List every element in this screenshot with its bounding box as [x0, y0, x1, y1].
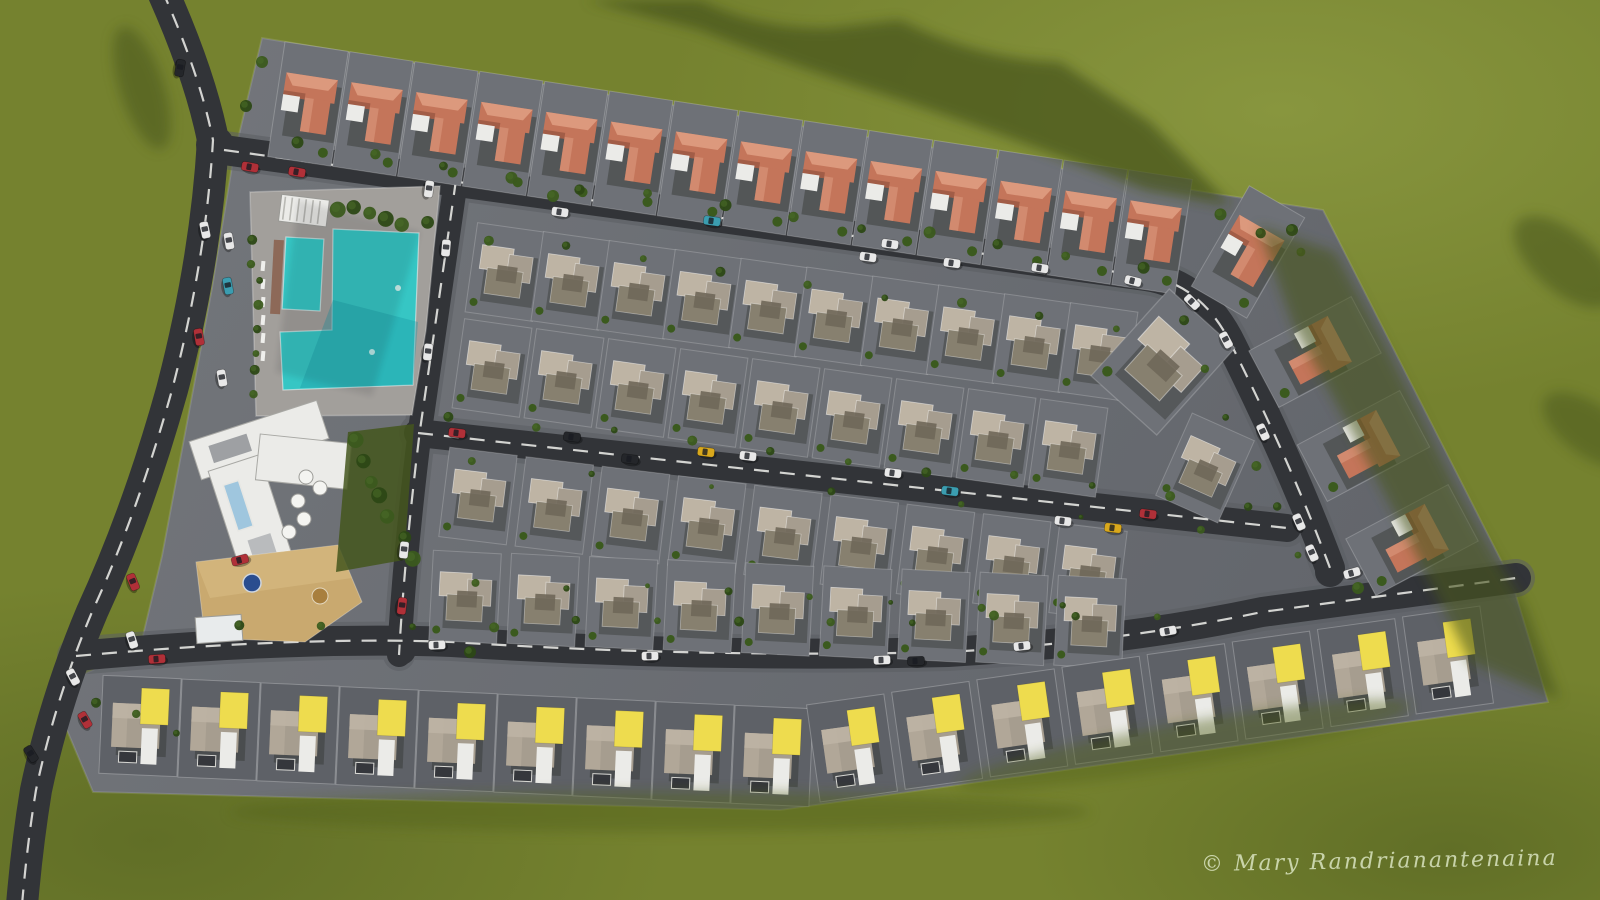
- yellow-roof-house: [494, 694, 576, 795]
- tree-icon: [363, 207, 376, 220]
- tree-icon: [249, 390, 257, 398]
- tree-icon: [256, 277, 263, 284]
- tree-icon: [643, 189, 652, 198]
- tree-icon: [588, 471, 594, 477]
- gray-roof-house: [1054, 575, 1127, 668]
- tree-icon: [826, 618, 834, 626]
- tree-icon: [547, 190, 559, 202]
- tree-icon: [1179, 315, 1189, 325]
- tree-icon: [292, 136, 304, 148]
- junction-bottom: [386, 635, 416, 665]
- gray-roof-house: [956, 389, 1036, 488]
- gray-roof-house: [976, 572, 1049, 665]
- tree-icon: [240, 100, 252, 112]
- tree-icon: [989, 610, 999, 620]
- yellow-roof-house: [1232, 631, 1323, 739]
- tree-icon: [958, 501, 964, 507]
- gray-roof-house: [1028, 399, 1108, 498]
- tree-icon: [1295, 552, 1302, 559]
- tree-icon: [1079, 515, 1084, 520]
- tree-icon: [1061, 252, 1070, 261]
- tree-icon: [645, 583, 650, 588]
- yellow-roof-house: [1062, 656, 1153, 764]
- tree-icon: [1297, 248, 1306, 257]
- gray-roof-house: [884, 379, 964, 478]
- yellow-roof-house: [178, 679, 260, 780]
- tree-icon: [1035, 312, 1043, 320]
- playground-roundabout: [243, 574, 261, 592]
- tree-icon: [1165, 491, 1175, 501]
- tree-icon: [378, 211, 394, 227]
- gray-roof-house: [585, 557, 658, 650]
- tree-icon: [827, 487, 835, 495]
- gray-roof-house: [524, 329, 604, 428]
- tree-icon: [806, 594, 812, 600]
- yellow-roof-house: [1317, 619, 1408, 727]
- playground-canopy: [195, 614, 243, 643]
- tree-icon: [845, 458, 852, 465]
- tree-icon: [247, 260, 255, 268]
- tree-icon: [957, 298, 967, 308]
- tree-icon: [725, 587, 733, 595]
- tree-icon: [924, 226, 936, 238]
- tree-icon: [788, 212, 798, 222]
- yellow-roof-house: [652, 702, 734, 803]
- tree-icon: [234, 620, 244, 630]
- gray-roof-house: [515, 457, 593, 555]
- tree-icon: [1256, 228, 1266, 238]
- tree-icon: [1113, 326, 1120, 333]
- yellow-roof-house: [1403, 606, 1494, 714]
- junction-bottom-right: [1315, 557, 1345, 587]
- tree-icon: [347, 200, 361, 214]
- tree-icon: [421, 216, 434, 229]
- playground-sandpit: [312, 588, 328, 604]
- tree-icon: [250, 365, 260, 375]
- tree-icon: [574, 184, 584, 194]
- tree-icon: [716, 267, 726, 277]
- gray-roof-house: [668, 349, 748, 448]
- tree-icon: [709, 484, 714, 489]
- tree-icon: [734, 616, 744, 626]
- tree-icon: [909, 619, 916, 626]
- tree-icon: [506, 172, 518, 184]
- gray-roof-house: [897, 569, 970, 662]
- tree-icon: [921, 467, 931, 477]
- gray-roof-house: [812, 369, 892, 468]
- tree-icon: [365, 476, 378, 489]
- tree-icon: [91, 698, 101, 708]
- tree-icon: [1089, 482, 1096, 489]
- tree-icon: [484, 236, 494, 246]
- tree-icon: [1154, 614, 1161, 621]
- tree-icon: [640, 255, 647, 262]
- gray-roof-house: [596, 339, 676, 438]
- tree-icon: [380, 509, 394, 523]
- tree-icon: [317, 622, 325, 630]
- gray-roof-house: [663, 560, 736, 653]
- yellow-roof-house: [1147, 644, 1238, 752]
- tree-icon: [1060, 602, 1066, 608]
- yellow-roof-house: [573, 698, 655, 799]
- yellow-roof-house: [415, 690, 497, 791]
- aerial-masterplan-render: © Mary Randrianantenaina: [0, 0, 1600, 900]
- tree-icon: [489, 622, 499, 632]
- tree-icon: [395, 218, 409, 232]
- tree-icon: [978, 604, 986, 612]
- tree-icon: [253, 325, 261, 333]
- yellow-roof-house: [731, 705, 813, 806]
- scene-canvas: [0, 0, 1600, 900]
- tree-icon: [720, 199, 732, 211]
- tree-icon: [173, 730, 180, 737]
- tree-icon: [1201, 365, 1209, 373]
- tree-icon: [803, 281, 811, 289]
- tree-icon: [330, 202, 346, 218]
- tree-icon: [409, 623, 416, 630]
- tree-icon: [443, 412, 453, 422]
- tree-icon: [562, 241, 570, 249]
- yellow-roof-house: [892, 681, 983, 789]
- tree-icon: [468, 457, 476, 465]
- tree-icon: [1138, 262, 1150, 274]
- tree-icon: [256, 56, 268, 68]
- gray-roof-house: [439, 447, 517, 545]
- tree-icon: [1244, 503, 1252, 511]
- tree-icon: [247, 235, 257, 245]
- gray-roof-house: [740, 359, 820, 458]
- tree-icon: [1273, 502, 1281, 510]
- yellow-roof-house: [977, 669, 1068, 777]
- gray-roof-house: [819, 566, 892, 659]
- tree-icon: [1286, 224, 1298, 236]
- tree-icon: [888, 600, 893, 605]
- tree-icon: [464, 646, 476, 658]
- tree-icon: [687, 436, 697, 446]
- tree-icon: [370, 149, 380, 159]
- tree-icon: [371, 487, 387, 503]
- tree-icon: [1251, 461, 1261, 471]
- tree-icon: [654, 617, 661, 624]
- tree-icon: [356, 454, 370, 468]
- tree-icon: [611, 427, 618, 434]
- tree-icon: [1010, 471, 1018, 479]
- tree-icon: [881, 294, 888, 301]
- yellow-roof-house: [99, 675, 181, 776]
- tree-icon: [439, 162, 448, 171]
- gray-roof-house: [741, 563, 814, 656]
- tree-icon: [1352, 582, 1364, 594]
- tree-icon: [348, 432, 364, 448]
- junction-top-left: [196, 126, 234, 164]
- yellow-roof-house: [807, 694, 898, 802]
- tree-icon: [532, 423, 540, 431]
- gray-roof-house: [668, 476, 746, 574]
- gray-roof-house: [452, 319, 532, 418]
- tree-icon: [1197, 526, 1205, 534]
- yellow-roof-house: [336, 687, 418, 788]
- tree-icon: [253, 350, 260, 357]
- tree-icon: [1222, 414, 1229, 421]
- tree-icon: [766, 447, 774, 455]
- tree-icon: [1071, 612, 1079, 620]
- tree-icon: [572, 616, 580, 624]
- tree-icon: [1215, 208, 1227, 220]
- gray-roof-house: [507, 553, 580, 646]
- gray-roof-house: [591, 466, 669, 564]
- tree-icon: [132, 710, 140, 718]
- tree-icon: [472, 579, 480, 587]
- tree-icon: [563, 585, 569, 591]
- tree-icon: [857, 224, 866, 233]
- yellow-roof-house: [257, 683, 339, 784]
- tree-icon: [253, 300, 263, 310]
- tree-icon: [992, 239, 1002, 249]
